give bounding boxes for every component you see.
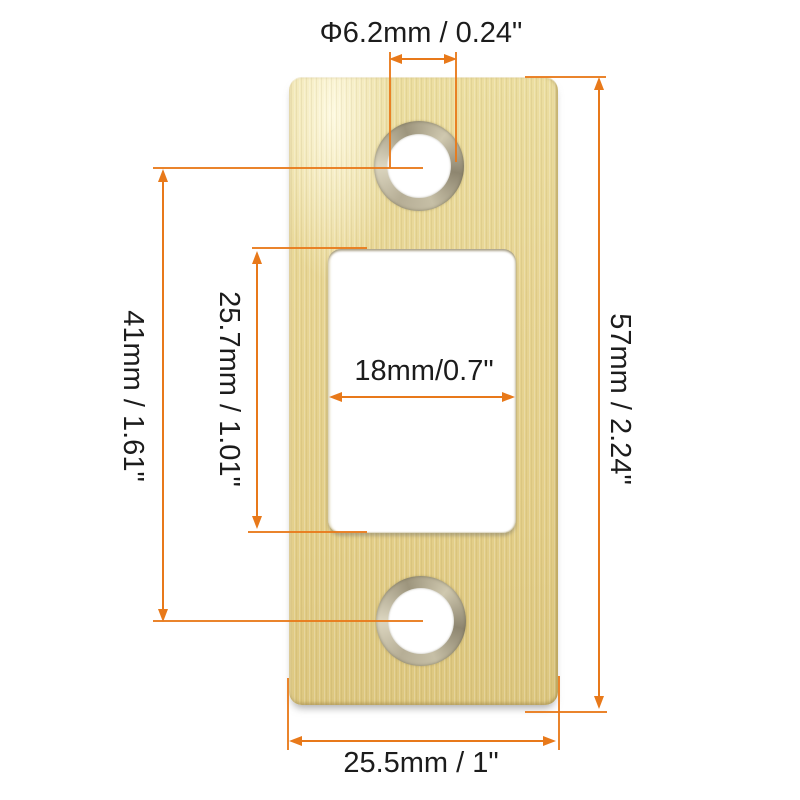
top-screw-hole bbox=[387, 134, 451, 198]
arrow-up-icon bbox=[252, 251, 262, 264]
cutout-width-label: 18mm/0.7" bbox=[354, 356, 493, 386]
cutout-height-ext-top bbox=[252, 247, 367, 249]
hole-diameter-ext-left bbox=[389, 52, 391, 168]
latch-cutout bbox=[328, 249, 516, 533]
plate-width-ext-left bbox=[287, 678, 289, 750]
cutout-height-dim-line bbox=[256, 254, 258, 526]
arrow-down-icon bbox=[252, 516, 262, 529]
strike-plate bbox=[289, 77, 558, 705]
arrow-right-icon bbox=[502, 392, 515, 402]
plate-width-label: 25.5mm / 1" bbox=[343, 748, 498, 778]
cutout-height-label: 25.7mm / 1.01" bbox=[214, 291, 244, 487]
plate-width-ext-right bbox=[558, 676, 560, 750]
arrow-left-icon bbox=[329, 392, 342, 402]
hole-spacing-dim-line bbox=[162, 172, 164, 619]
plate-width-dim-line bbox=[292, 740, 553, 742]
arrow-left-icon bbox=[289, 736, 302, 746]
hole-diameter-label: Φ6.2mm / 0.24" bbox=[320, 18, 523, 48]
plate-height-ext-bottom bbox=[525, 711, 607, 713]
cutout-width-dim-line bbox=[332, 396, 512, 398]
plate-height-dim-line bbox=[598, 80, 600, 706]
arrow-right-icon bbox=[543, 736, 556, 746]
hole-spacing-ext-bottom bbox=[153, 620, 423, 622]
product-dimension-diagram: Φ6.2mm / 0.24" 41mm / 1.61" 25.7mm / 1.0… bbox=[0, 0, 800, 800]
hole-spacing-label: 41mm / 1.61" bbox=[118, 310, 148, 481]
arrow-down-icon bbox=[594, 696, 604, 709]
arrow-up-icon bbox=[594, 77, 604, 90]
plate-height-ext-top bbox=[525, 76, 606, 78]
plate-height-label: 57mm / 2.24" bbox=[605, 313, 635, 484]
arrow-up-icon bbox=[158, 169, 168, 182]
hole-diameter-ext-right bbox=[455, 52, 457, 162]
cutout-height-ext-bottom bbox=[248, 531, 367, 533]
hole-spacing-ext-top bbox=[153, 167, 423, 169]
